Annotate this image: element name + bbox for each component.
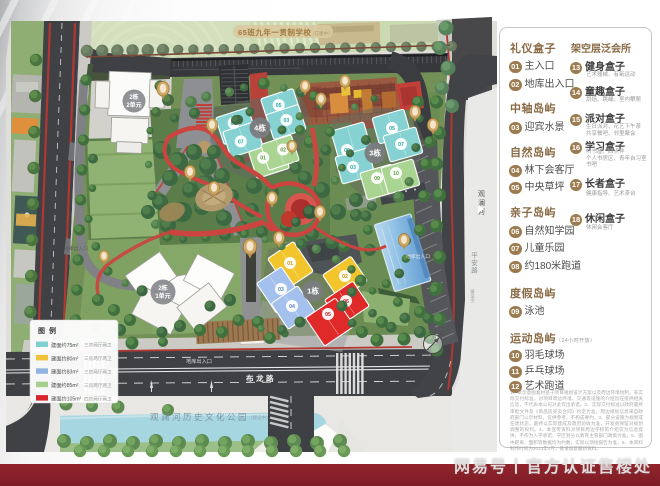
svg-text:N: N bbox=[440, 332, 443, 337]
svg-text:三房两厅两卫: 三房两厅两卫 bbox=[84, 369, 112, 376]
svg-text:地库出入口: 地库出入口 bbox=[64, 245, 88, 252]
svg-text:建面约105m²: 建面约105m² bbox=[51, 395, 82, 403]
svg-text:图例: 图例 bbox=[38, 326, 60, 335]
svg-text:布龙路: 布龙路 bbox=[246, 373, 276, 383]
svg-text:03: 03 bbox=[350, 165, 356, 171]
svg-text:09: 09 bbox=[374, 176, 380, 182]
svg-text:07: 07 bbox=[238, 139, 244, 145]
svg-text:05: 05 bbox=[389, 126, 395, 132]
svg-text:02: 02 bbox=[342, 274, 348, 280]
svg-text:07: 07 bbox=[398, 142, 404, 148]
svg-text:地库出入口: 地库出入口 bbox=[186, 357, 212, 365]
svg-text:65班九年一贯制学校: 65班九年一贯制学校 bbox=[238, 27, 311, 37]
svg-text:观澜河历史文化公园: 观澜河历史文化公园 bbox=[150, 412, 249, 422]
svg-text:2栋: 2栋 bbox=[129, 93, 138, 101]
svg-text:（在建中）: （在建中） bbox=[310, 30, 333, 37]
svg-text:（建设中）: （建设中） bbox=[471, 286, 476, 306]
svg-text:三房两厅两卫: 三房两厅两卫 bbox=[84, 342, 112, 349]
svg-text:03: 03 bbox=[278, 287, 284, 293]
svg-text:03: 03 bbox=[284, 118, 290, 124]
svg-text:建面约80m²: 建面约80m² bbox=[51, 354, 79, 362]
svg-text:三房两厅两卫: 三房两厅两卫 bbox=[84, 382, 112, 389]
svg-text:05: 05 bbox=[276, 103, 282, 109]
svg-text:10: 10 bbox=[393, 171, 399, 177]
svg-text:四房两厅两卫: 四房两厅两卫 bbox=[84, 395, 112, 402]
svg-text:建面约83m²: 建面约83m² bbox=[51, 368, 79, 376]
svg-text:4栋: 4栋 bbox=[254, 123, 266, 133]
svg-text:观澜河: 观澜河 bbox=[478, 190, 486, 217]
svg-text:04: 04 bbox=[289, 304, 295, 310]
svg-text:地库出入口: 地库出入口 bbox=[406, 253, 430, 260]
svg-text:2栋: 2栋 bbox=[158, 284, 167, 292]
svg-text:1栋: 1栋 bbox=[307, 286, 319, 296]
svg-text:05: 05 bbox=[325, 312, 331, 318]
svg-text:02: 02 bbox=[280, 147, 286, 153]
svg-text:（建设中）: （建设中） bbox=[248, 414, 271, 421]
svg-text:01: 01 bbox=[260, 156, 266, 162]
svg-text:2单元: 2单元 bbox=[126, 101, 141, 109]
svg-text:三房两厅两卫: 三房两厅两卫 bbox=[84, 355, 112, 362]
svg-text:1单元: 1单元 bbox=[155, 292, 170, 300]
svg-text:01: 01 bbox=[287, 261, 293, 267]
svg-text:建面约85m²: 建面约85m² bbox=[51, 381, 79, 389]
svg-text:3栋: 3栋 bbox=[369, 148, 381, 158]
svg-text:建面约75m²: 建面约75m² bbox=[51, 341, 79, 349]
